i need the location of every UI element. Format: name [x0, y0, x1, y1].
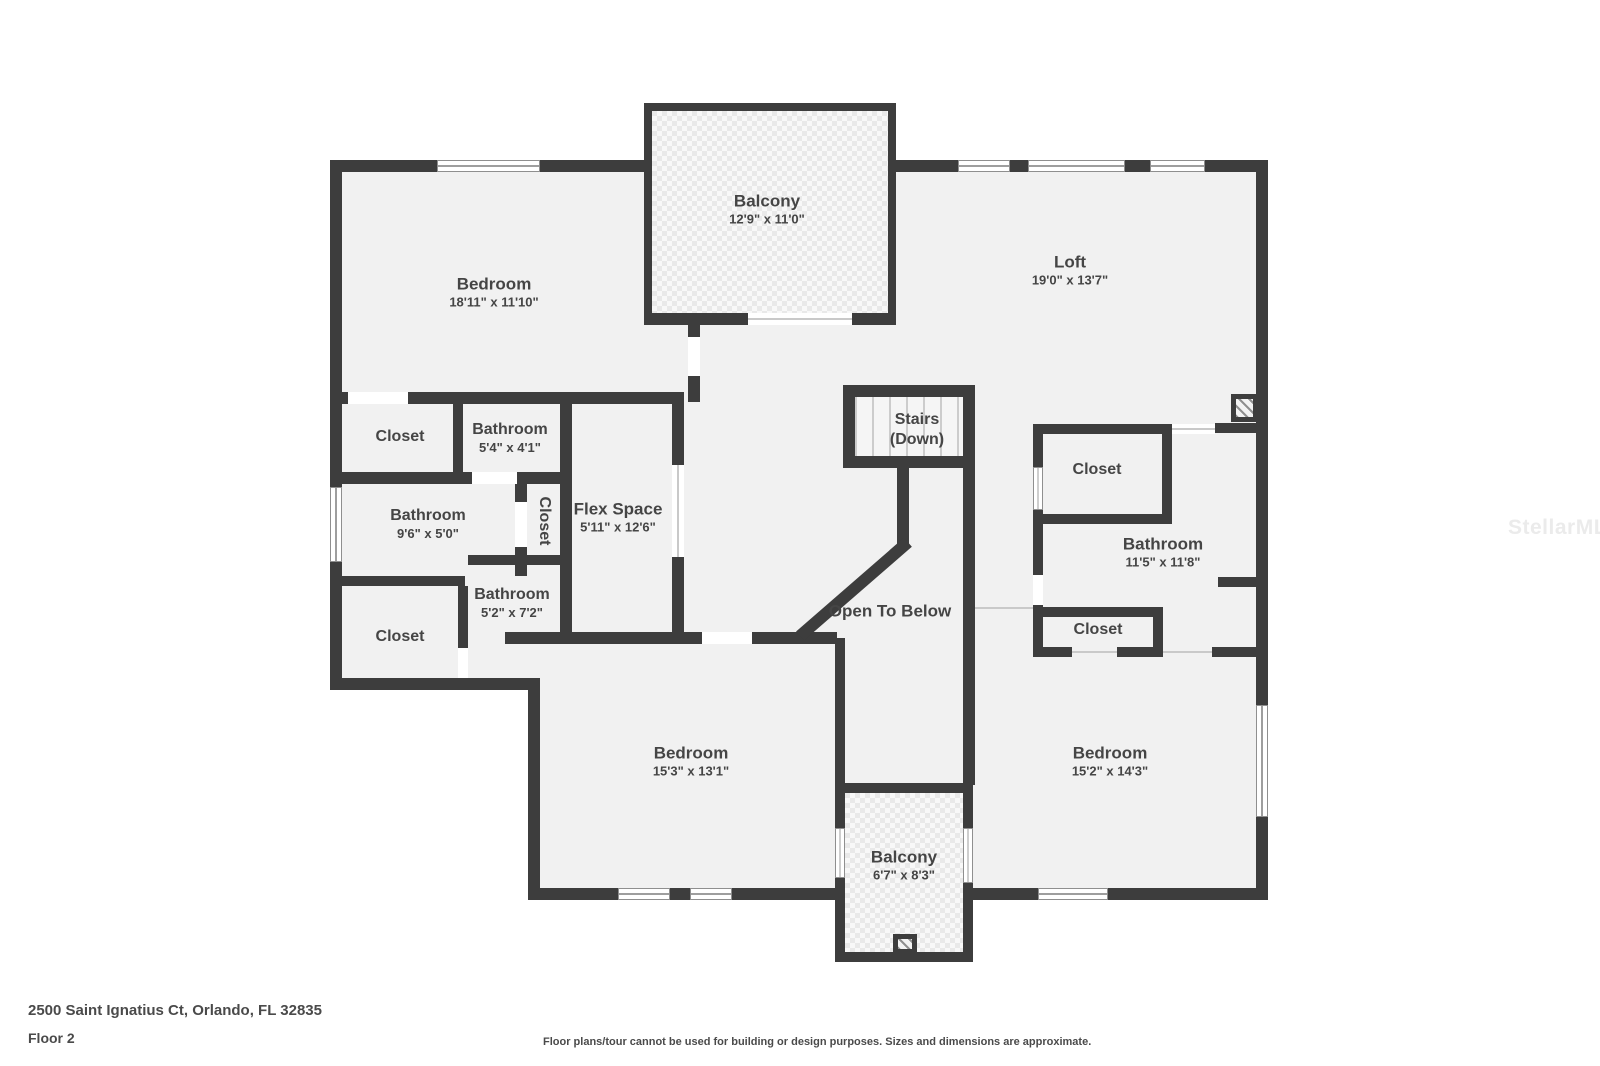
- wall-closet-tl-divider: [453, 404, 463, 472]
- label-bedroom-top-left: Bedroom 18'11" x 11'10": [449, 273, 538, 311]
- wall-bedroom-br-top-b: [1117, 647, 1163, 657]
- balcony-bottom-hatch-marker: [893, 934, 917, 954]
- balcony-bottom-wall-right-b: [963, 883, 973, 953]
- wall-hatch-stub: [1215, 423, 1268, 433]
- label-closet-bottom-right: Closet: [1074, 620, 1123, 640]
- wall-stairs-top: [843, 385, 975, 397]
- balcony-top-door-line: [748, 318, 852, 320]
- wall-bedroom-br-top-a: [1038, 647, 1072, 657]
- wall-bedroom-br-top-c: [1212, 647, 1268, 657]
- doorway-loft-bath-line: [1172, 428, 1215, 430]
- wall-closet-tr-right: [1162, 434, 1172, 524]
- balcony-bottom-wall-right-a: [963, 793, 973, 828]
- label-closet-top-left: Closet: [376, 427, 425, 447]
- label-closet-vertical: Closet: [534, 497, 554, 546]
- wall-flex-right-a: [672, 404, 684, 465]
- balcony-bottom-wall-left-a: [835, 793, 845, 828]
- door-closet-br-line: [1072, 651, 1117, 653]
- label-bathroom-mid-left: Bathroom 5'2" x 7'2": [474, 585, 550, 621]
- wall-bedroom-tl-right-b: [688, 376, 700, 402]
- wall-stairs-left: [843, 397, 855, 456]
- label-loft: Loft 19'0" x 13'7": [1032, 251, 1108, 289]
- window-loft-1: [958, 160, 1010, 172]
- floor-plan-page: { "rooms": [ { "id": "balcony-top", "nam…: [0, 0, 1600, 1066]
- label-stairs: Stairs (Down): [890, 410, 944, 450]
- wall-step-vertical: [528, 678, 540, 900]
- balcony-top-wall-bottom-b: [852, 313, 896, 325]
- wall-hall-bottom-b: [752, 632, 837, 644]
- door-closet-bl: [458, 648, 468, 678]
- wall-bottom-right: [971, 888, 1268, 900]
- door-bedroom-br-line: [1163, 651, 1212, 653]
- floor-number: Floor 2: [28, 1030, 75, 1046]
- wall-bathroom-mid-top: [468, 555, 570, 565]
- balcony-top-wall-left: [644, 103, 652, 317]
- door-closet-tl: [348, 392, 408, 404]
- door-bathroom-small: [472, 472, 517, 484]
- wall-left: [330, 160, 342, 690]
- wall-closet-br-top: [1038, 607, 1163, 617]
- disclaimer-text: Floor plans/tour cannot be used for buil…: [543, 1036, 1091, 1048]
- balcony-top-wall-right: [888, 103, 896, 317]
- balcony-bottom-window-left: [835, 828, 845, 878]
- window-closet-tr: [1033, 467, 1043, 510]
- label-bedroom-bottom-left: Bedroom 15'3" x 13'1": [653, 742, 729, 780]
- wall-bathroom-small-bottom-b: [517, 472, 562, 484]
- wall-bathroom-small-bottom-a: [462, 472, 472, 484]
- stellar-mls-watermark: StellarMLS: [1508, 516, 1600, 540]
- balcony-bottom-wall-top: [835, 783, 973, 793]
- window-left-wall: [330, 487, 342, 562]
- balcony-bottom-wall-left-b: [835, 878, 845, 953]
- label-closet-top-right: Closet: [1073, 460, 1122, 480]
- label-bathroom-left: Bathroom 9'6" x 5'0": [390, 506, 466, 542]
- wall-bathroom-right-stub: [1218, 577, 1268, 587]
- wall-stairs-bottom: [843, 456, 975, 468]
- balcony-bottom-window-right: [963, 828, 973, 883]
- window-bedroom-br: [1038, 888, 1108, 900]
- label-flex-space: Flex Space 5'11" x 12'6": [574, 498, 663, 536]
- wall-open-below-right: [963, 385, 975, 785]
- label-balcony-bottom: Balcony 6'7" x 8'3": [871, 846, 937, 884]
- wall-closet-bl-top: [330, 576, 465, 586]
- label-closet-bottom-left: Closet: [376, 627, 425, 647]
- chase-hatch-marker: [1231, 394, 1258, 422]
- window-loft-3: [1150, 160, 1205, 172]
- wall-step-horizontal: [330, 678, 540, 690]
- door-bedroom-bl: [702, 632, 752, 644]
- wall-closet-bl-right: [458, 586, 468, 648]
- door-bedroom-tl: [688, 337, 700, 376]
- label-balcony-top: Balcony 12'9" x 11'0": [729, 190, 805, 228]
- window-bedroom-bl-2: [690, 888, 732, 900]
- floor-plan: Balcony 12'9" x 11'0" Bedroom 18'11" x 1…: [0, 0, 1600, 1066]
- label-open-to-below: Open To Below: [829, 600, 951, 621]
- wall-closet-tr-top: [1033, 424, 1172, 434]
- wall-bottom-left: [540, 888, 837, 900]
- window-right-wall: [1256, 705, 1268, 817]
- wall-closet-tl-bottom: [330, 472, 462, 484]
- wall-bedroom-tl-bottom-a: [330, 392, 348, 404]
- wall-bedroom-tl-right-a: [688, 313, 700, 337]
- wall-closet-tr-bottom: [1033, 514, 1172, 524]
- window-top-left: [437, 160, 540, 172]
- wall-open-below-left: [835, 638, 845, 783]
- window-bedroom-bl-1: [618, 888, 670, 900]
- door-closet-vert: [515, 502, 527, 547]
- wall-below-stairs: [897, 468, 909, 548]
- wall-flex-right-b: [672, 557, 684, 644]
- window-loft-2: [1028, 160, 1125, 172]
- opening-flex-line: [677, 465, 679, 557]
- balcony-top-wall-top: [644, 103, 896, 111]
- label-bathroom-right: Bathroom 11'5" x 11'8": [1123, 533, 1203, 571]
- label-bedroom-bottom-right: Bedroom 15'2" x 14'3": [1072, 742, 1148, 780]
- label-bathroom-small: Bathroom 5'4" x 4'1": [472, 420, 548, 456]
- doorway-hall-right: [975, 607, 1033, 609]
- wall-flex-left: [560, 392, 572, 644]
- wall-bedroom-tl-bottom-b: [408, 392, 684, 404]
- door-bathroom-right: [1033, 575, 1043, 605]
- wall-closet-vert-left-a: [515, 484, 527, 502]
- wall-hall-bottom-a: [505, 632, 702, 644]
- property-address: 2500 Saint Ignatius Ct, Orlando, FL 3283…: [28, 1002, 322, 1019]
